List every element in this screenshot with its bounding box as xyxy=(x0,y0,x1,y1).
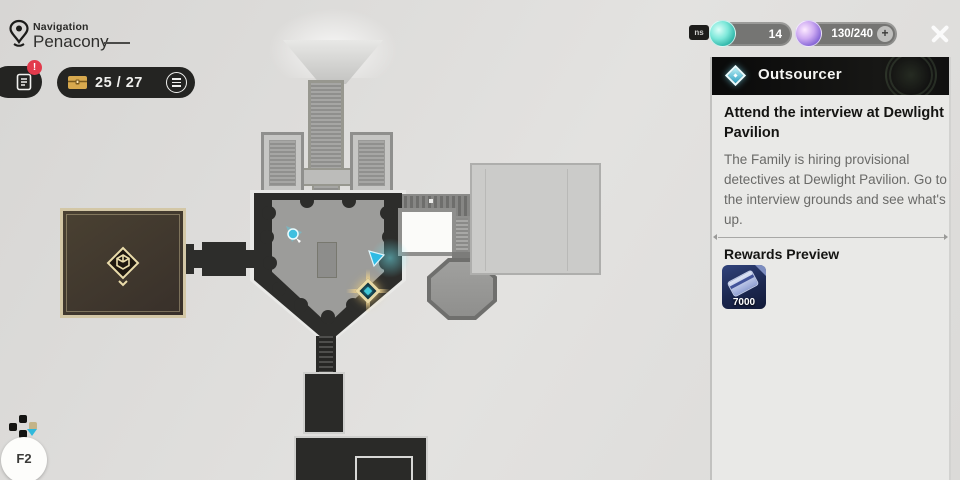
power-orb-icon xyxy=(795,20,822,47)
mission-category: Outsourcer xyxy=(758,66,842,83)
currency-power-pill[interactable]: 130/240 + xyxy=(797,22,897,46)
journal-icon xyxy=(16,73,32,91)
map-stair-corridor-bottom xyxy=(316,336,336,376)
map-pin-icon xyxy=(8,19,30,49)
map-room-bottom xyxy=(303,372,345,434)
mission-title: Attend the interview at Dewlight Pavilio… xyxy=(724,103,946,143)
map-scallop xyxy=(380,206,394,220)
map-dot xyxy=(429,199,433,203)
map-room-bottom-inner xyxy=(355,456,413,480)
player-marker-icon xyxy=(282,222,308,248)
map-scallop xyxy=(294,298,308,312)
mission-header: Outsourcer xyxy=(712,57,949,95)
close-button[interactable] xyxy=(925,20,955,48)
jade-orb-icon xyxy=(709,20,736,47)
divider-arrow-left-icon xyxy=(713,234,717,240)
hotkey-pointer-icon xyxy=(27,429,37,436)
map-west-corridor-block xyxy=(202,242,246,276)
chest-icon xyxy=(67,74,88,91)
jade-count: 14 xyxy=(769,27,792,41)
map-scallop xyxy=(321,310,335,324)
currency-jade-pill[interactable]: 14 xyxy=(711,22,792,46)
quest-marker-icon[interactable] xyxy=(346,269,390,313)
rewards-preview-label: Rewards Preview xyxy=(724,246,839,262)
hotkey-f2-button[interactable]: F2 xyxy=(1,437,47,480)
reward-amount: 7000 xyxy=(722,297,766,308)
menu-icon[interactable] xyxy=(166,72,187,93)
mission-panel: Outsourcer Attend the interview at Dewli… xyxy=(710,57,951,480)
map-west-corridor-nub xyxy=(186,244,194,274)
divider-arrow-right-icon xyxy=(944,234,948,240)
map-screen: Navigation Penacony ! 25 / 27 ns 14 130/… xyxy=(0,0,960,480)
map-scallop xyxy=(300,194,314,208)
teleport-marker-icon[interactable] xyxy=(366,248,386,268)
map-scallop xyxy=(263,256,277,270)
mission-description: The Family is hiring provisional detecti… xyxy=(724,150,950,230)
add-button[interactable]: + xyxy=(877,26,893,42)
alert-badge: ! xyxy=(27,60,42,75)
map-scallop xyxy=(260,230,274,244)
family-emblem-icon xyxy=(885,57,937,95)
map-scallop xyxy=(272,282,286,296)
title-rule xyxy=(104,42,130,44)
map-hall-feature xyxy=(317,242,337,278)
map-scallop xyxy=(262,206,276,220)
credit-card-icon xyxy=(727,269,760,297)
page-title-location: Penacony xyxy=(33,32,109,52)
map-stair-corridor-top xyxy=(308,80,344,174)
map-scallop xyxy=(342,194,356,208)
chest-counter-button[interactable]: 25 / 27 xyxy=(57,67,195,98)
chest-count: 25 / 27 xyxy=(95,75,143,91)
map-room-large-east xyxy=(470,163,601,275)
divider xyxy=(718,237,946,238)
room-marker-icon[interactable] xyxy=(106,246,140,288)
reward-credit-tile[interactable]: 7000 xyxy=(722,265,766,309)
ns-badge-icon: ns xyxy=(689,25,709,40)
mission-diamond-icon xyxy=(725,65,746,86)
power-count: 130/240 xyxy=(831,28,877,40)
